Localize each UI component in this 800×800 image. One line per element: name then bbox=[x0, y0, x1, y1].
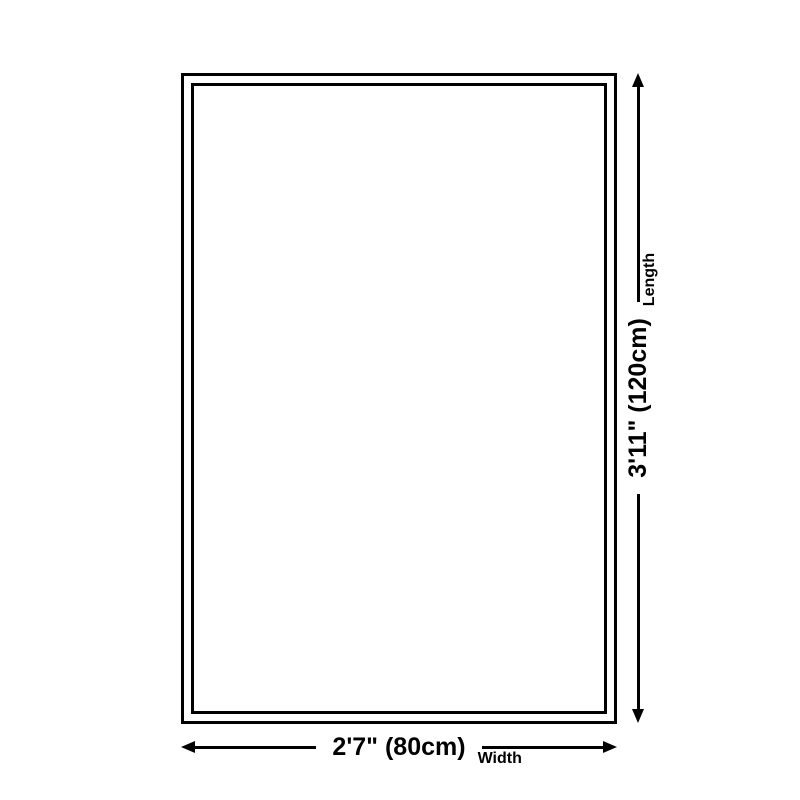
width-dimension-line-left bbox=[195, 746, 316, 749]
length-dimension: 3'11" (120cm) Length bbox=[622, 73, 654, 723]
size-diagram: 2'7" (80cm) Width 3'11" (120cm) Length bbox=[0, 0, 800, 800]
width-dimension-line-right bbox=[482, 746, 603, 749]
arrow-left-icon bbox=[181, 741, 195, 753]
length-dimension-label: 3'11" (120cm) Length bbox=[624, 318, 653, 478]
arrow-right-icon bbox=[603, 741, 617, 753]
width-dimension-label: 2'7" (80cm) Width bbox=[332, 733, 465, 762]
width-label: Width bbox=[478, 750, 522, 768]
arrow-up-icon bbox=[632, 73, 644, 87]
length-label: Length bbox=[641, 253, 659, 306]
product-outline-inner bbox=[191, 83, 607, 714]
length-dimension-line-bottom bbox=[637, 494, 640, 709]
length-dimension-line-top bbox=[637, 87, 640, 302]
length-value: 3'11" (120cm) bbox=[624, 318, 652, 478]
width-value: 2'7" (80cm) bbox=[332, 733, 465, 761]
width-dimension: 2'7" (80cm) Width bbox=[181, 731, 617, 763]
arrow-down-icon bbox=[632, 709, 644, 723]
product-outline-outer bbox=[181, 73, 617, 724]
